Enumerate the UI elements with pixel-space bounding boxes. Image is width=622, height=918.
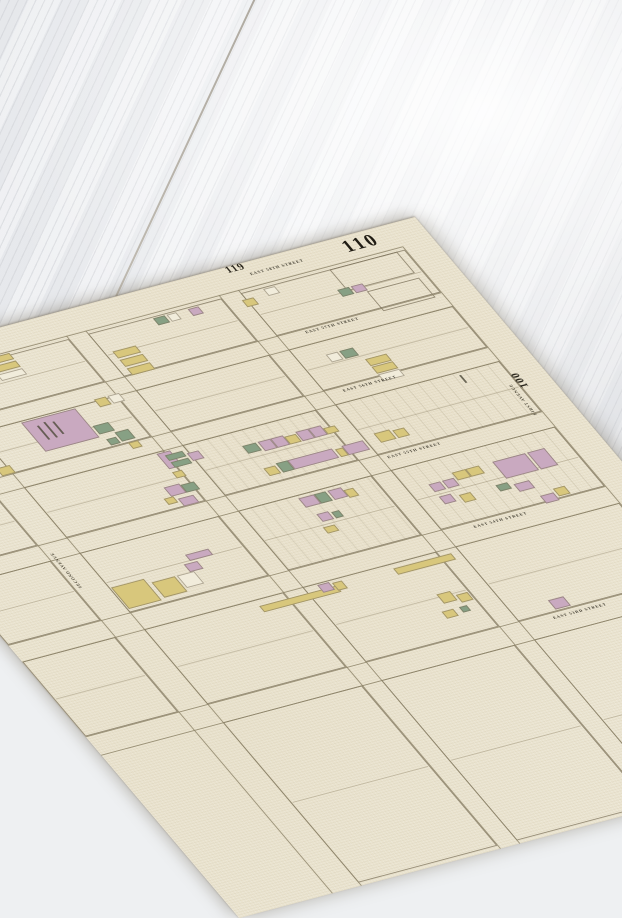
street-label: EAST 58TH STREET [249, 258, 305, 276]
street-label: EAST 57TH STREET [304, 316, 360, 334]
street-label: EAST 53RD STREET [552, 602, 608, 620]
avenue-label: SECOND AVENUE [49, 552, 84, 589]
map-ink-mark [459, 375, 467, 383]
street-label: EAST 54TH STREET [472, 511, 528, 529]
street-label: EAST 55TH STREET [386, 441, 442, 459]
street-label: EAST 56TH STREET [341, 375, 397, 393]
